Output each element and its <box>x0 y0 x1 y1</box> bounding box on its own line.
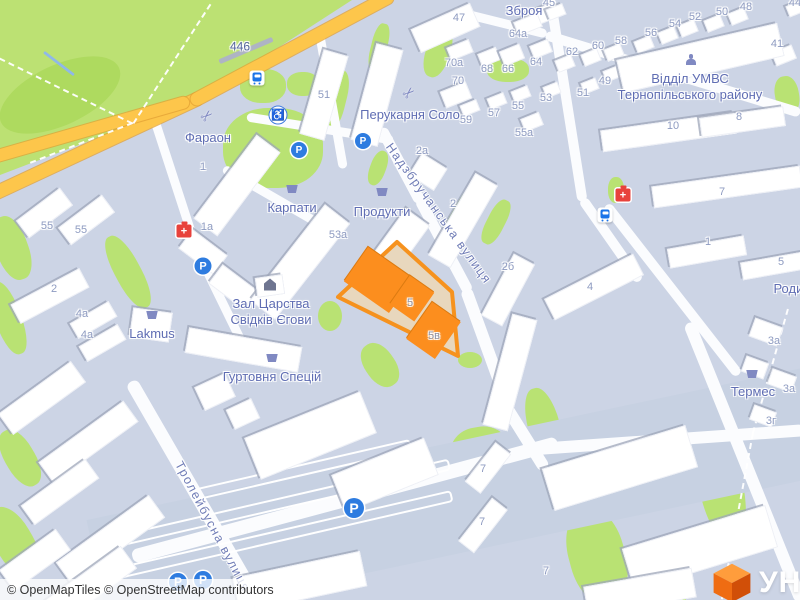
house-number: 54 <box>669 18 681 32</box>
poi-label[interactable]: Зал Царства Свідків Єгови <box>230 296 311 329</box>
house-number: 53а <box>329 229 347 243</box>
poi-label[interactable]: Фараон <box>185 130 231 146</box>
pharmacy-icon[interactable]: + <box>616 189 631 202</box>
house-number: 55а <box>515 127 533 141</box>
house-number: 5 <box>778 256 784 270</box>
house-number: 3а <box>768 335 780 349</box>
green-area <box>0 424 48 493</box>
house-number: 55 <box>512 100 524 114</box>
house-number: 7 <box>719 186 725 200</box>
green-area <box>318 301 342 331</box>
poi-label[interactable]: Родин <box>773 281 800 297</box>
wheelchair-access-icon[interactable]: ♿ <box>269 106 288 125</box>
poi-label[interactable]: Гуртовня Спецій <box>223 369 322 385</box>
building <box>740 250 800 281</box>
house-number: 70 <box>452 75 464 89</box>
house-number: 55 <box>41 220 53 234</box>
shop-basket-icon[interactable] <box>286 185 299 193</box>
house-number: 51 <box>318 89 330 103</box>
house-number: 7 <box>479 516 485 530</box>
hall-building-icon[interactable] <box>264 284 276 291</box>
house-number: 64 <box>530 56 542 70</box>
map-attribution[interactable]: © OpenMapTiles © OpenStreetMap contribut… <box>0 579 281 600</box>
parking-icon[interactable]: P <box>195 258 212 275</box>
house-number: 60 <box>592 40 604 54</box>
bus-stop-icon[interactable] <box>598 208 613 223</box>
orange-cube-logo-icon <box>712 563 752 600</box>
house-number: 47 <box>453 12 465 26</box>
house-number: 62 <box>566 46 578 60</box>
scissors-icon[interactable]: ✂ <box>398 82 419 104</box>
building <box>351 43 404 147</box>
parking-icon[interactable]: P <box>355 133 371 149</box>
building <box>544 254 644 321</box>
house-number: 4 <box>587 281 593 295</box>
house-number: 52 <box>689 11 701 25</box>
house-number: 68 <box>481 63 493 77</box>
map-screenshot: 55в446Надзбручанська вулицяТролейбусна в… <box>0 0 800 600</box>
house-number: 50 <box>716 6 728 20</box>
house-number: 8 <box>736 111 742 125</box>
house-number: 48 <box>740 1 752 15</box>
map-canvas[interactable]: 55в446Надзбручанська вулицяТролейбусна в… <box>0 0 800 600</box>
bus-stop-icon[interactable] <box>250 71 265 86</box>
house-number: 53 <box>540 92 552 106</box>
logo-partial-text: УН <box>759 566 800 600</box>
pharmacy-icon[interactable]: + <box>177 225 192 238</box>
house-number: 3а <box>783 383 795 397</box>
poi-label[interactable]: Карпати <box>267 200 316 216</box>
poi-label[interactable]: Перукарня Соло <box>360 107 460 123</box>
house-number: 59 <box>460 114 472 128</box>
highlight-house-number: 5в <box>428 330 440 344</box>
house-number: 57 <box>488 107 500 121</box>
house-number: 4а <box>76 308 88 322</box>
house-number: 1 <box>200 161 206 175</box>
building <box>226 398 261 430</box>
house-number: 7 <box>543 565 549 579</box>
green-area <box>458 352 482 368</box>
house-number: 56 <box>645 27 657 41</box>
poi-label[interactable]: Продукти <box>354 204 411 220</box>
house-number: 2 <box>450 198 456 212</box>
attribution-text[interactable]: © OpenMapTiles © OpenStreetMap contribut… <box>7 583 274 597</box>
poi-label[interactable]: Термес <box>731 384 775 400</box>
house-number: 64а <box>509 28 527 42</box>
house-number: 55 <box>75 224 87 238</box>
house-number: 66 <box>502 63 514 77</box>
house-number: 2б <box>502 261 514 275</box>
house-number: 58 <box>615 35 627 49</box>
parking-icon[interactable]: P <box>344 498 364 518</box>
poi-label[interactable]: Lakmus <box>129 326 175 342</box>
house-number: 2 <box>51 283 57 297</box>
house-number: 3г <box>766 415 776 429</box>
house-number: 49 <box>599 75 611 89</box>
house-number: 2а <box>416 145 428 159</box>
house-number: 4а <box>81 329 93 343</box>
house-number: 51 <box>577 87 589 101</box>
road <box>602 202 742 378</box>
building <box>0 361 86 435</box>
house-number: 1 <box>705 236 711 250</box>
parking-icon[interactable]: P <box>291 142 307 158</box>
scissors-icon[interactable]: ✂ <box>196 105 217 127</box>
green-area <box>354 337 406 394</box>
poi-label[interactable]: Відділ УМВС Тернопільського району <box>618 71 763 104</box>
house-number: 7 <box>480 463 486 477</box>
house-number: 10 <box>667 120 679 134</box>
house-number: 41 <box>771 38 783 52</box>
road-ref-label: 446 <box>230 40 250 55</box>
highlight-house-number: 5 <box>407 297 413 311</box>
house-number: 1а <box>201 221 213 235</box>
brand-logo[interactable]: УН <box>712 563 800 600</box>
house-number: 44 <box>789 0 800 11</box>
house-number: 45 <box>543 0 555 11</box>
poi-label[interactable]: Зброя <box>506 3 543 19</box>
building <box>651 166 800 209</box>
police-person-icon[interactable] <box>686 59 696 65</box>
shop-basket-icon[interactable] <box>376 188 389 196</box>
house-number: 70а <box>445 57 463 71</box>
